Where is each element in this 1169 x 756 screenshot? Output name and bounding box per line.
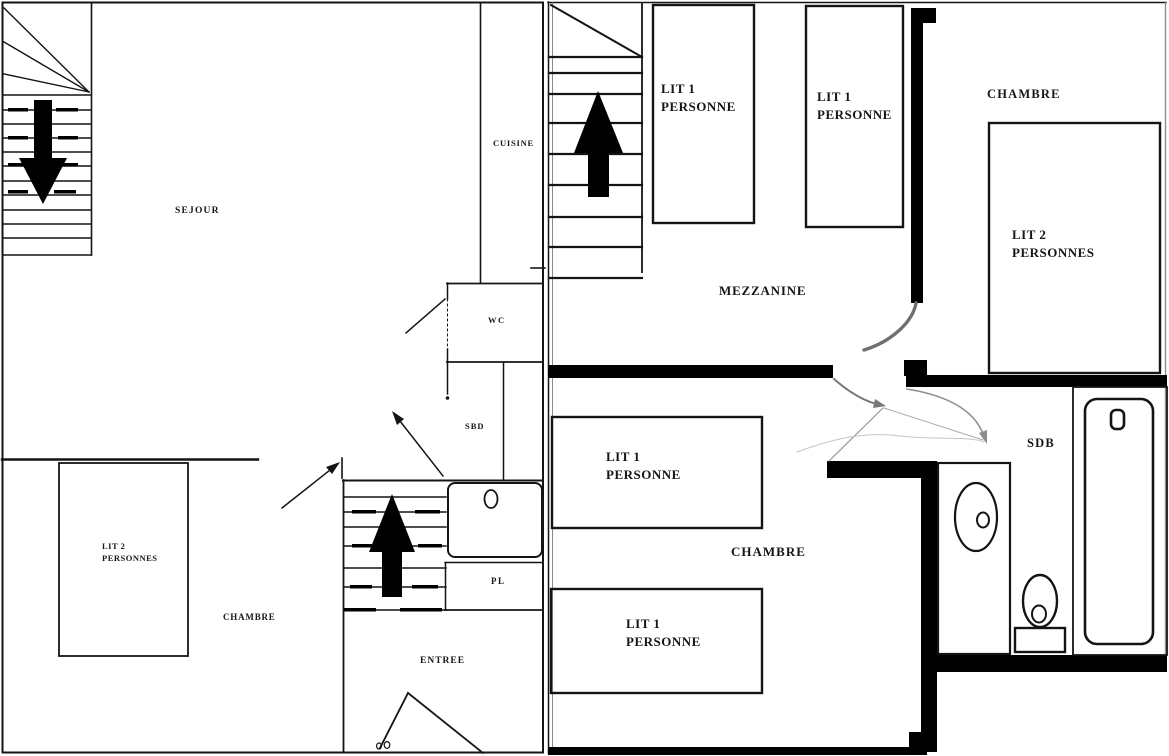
room-label-cuisine: CUISINE <box>493 138 534 149</box>
wc-room <box>406 283 543 362</box>
sdb-fixtures <box>938 387 1167 655</box>
faint-swing-line <box>797 435 984 452</box>
bed-label-single-low-bottom: LIT 1 PERSONNE <box>626 615 701 650</box>
room-label-chambre-top: CHAMBRE <box>987 87 1061 103</box>
door-swing-arrowhead <box>873 399 886 408</box>
bathtub <box>1085 399 1153 644</box>
toilet-drain <box>1032 606 1046 623</box>
floor-plan-drawing <box>0 0 1169 756</box>
door-hinge-mark <box>384 742 390 749</box>
ground-floor-plan <box>2 3 545 754</box>
stairs-up-arrow-icon <box>369 494 415 597</box>
wall-sdb-bottom <box>937 655 1167 672</box>
bed-label-single-mezz-right: LIT 1 PERSONNE <box>817 88 892 123</box>
sink-drain <box>485 490 498 508</box>
room-label-mezzanine: MEZZANINE <box>719 283 806 299</box>
ground-staircase-top <box>3 3 92 255</box>
wall-chambre-corridor <box>827 461 935 478</box>
bed-label-double-upper: LIT 2 PERSONNES <box>1012 226 1095 262</box>
room-label-sbd: SBD <box>465 421 485 432</box>
room-label-chambre-ground: CHAMBRE <box>223 612 276 623</box>
door-swing-arc <box>834 379 880 405</box>
room-label-entree: ENTREE <box>420 656 465 668</box>
ground-chambre <box>2 458 342 656</box>
room-label-pl: PL <box>491 576 506 587</box>
wall-chambre-bottom <box>548 747 927 755</box>
wall-sdb-left <box>921 461 937 752</box>
room-label-sejour: SEJOUR <box>175 206 220 218</box>
bed-label-double-ground: LIT 2 PERSONNES <box>102 541 158 564</box>
washbasin-drain <box>977 513 989 528</box>
bed-label-single-low-top: LIT 1 PERSONNE <box>606 448 681 483</box>
bed-label-single-mezz-left: LIT 1 PERSONNE <box>661 80 736 115</box>
room-label-wc: WC <box>488 315 506 326</box>
washbasin-unit <box>938 463 1010 654</box>
upper-staircase <box>549 3 642 278</box>
door-leaf <box>380 693 408 748</box>
ground-outer-wall <box>3 3 544 753</box>
wall-mezzanine-divider <box>548 365 833 378</box>
door-swing <box>408 693 483 753</box>
room-label-sdb: SDB <box>1027 436 1055 452</box>
sbd-door-leaf <box>396 416 443 476</box>
stair-diagonal <box>4 74 89 92</box>
room-label-chambre-bottom: CHAMBRE <box>731 544 806 560</box>
stairs-up-arrow-icon <box>574 91 623 197</box>
bathtub-drain <box>1111 410 1124 429</box>
chambre-door-leaf <box>282 470 330 508</box>
ground-staircase-main <box>343 480 543 752</box>
washbasin-bowl <box>955 483 997 551</box>
door-swing-arc <box>907 389 985 440</box>
door-swing-stroke <box>864 303 916 350</box>
toilet-bowl <box>1023 575 1057 627</box>
wc-door-leaf <box>406 299 445 333</box>
floor-plan-canvas: SEJOUR CUISINE WC SBD PL ENTREE CHAMBRE … <box>0 0 1169 756</box>
wall-block <box>904 360 927 376</box>
wall-chambre-sdb <box>906 375 1167 387</box>
wall-mezzanine-chambre <box>911 8 923 303</box>
entree-door <box>377 693 483 753</box>
toilet-base <box>1015 628 1065 652</box>
sink <box>448 483 542 557</box>
sbd-room <box>392 362 504 479</box>
stair-diagonal <box>551 5 642 57</box>
